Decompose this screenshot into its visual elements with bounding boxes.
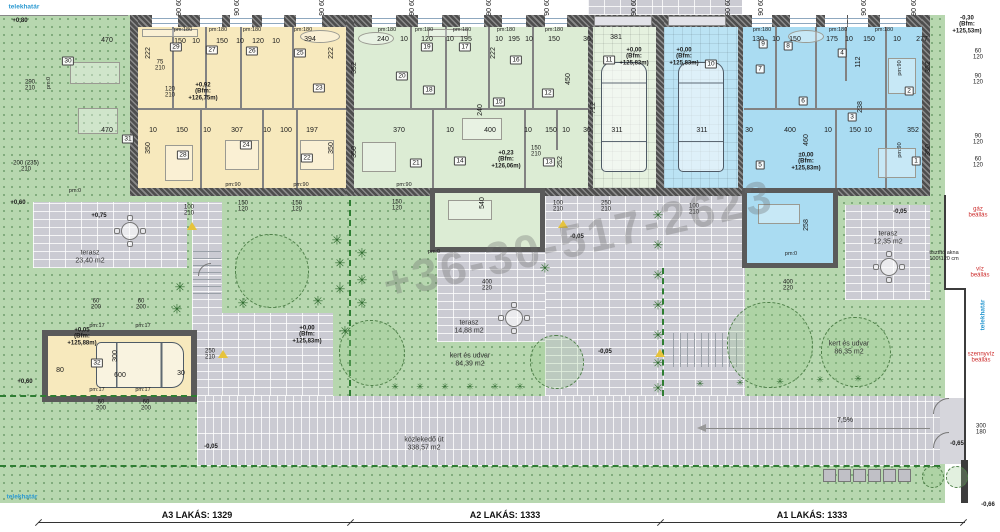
- boundary-label: telekhatár: [7, 493, 38, 500]
- parking-space: [883, 469, 896, 482]
- dimension-label: 350: [145, 142, 153, 154]
- window-marker: [825, 15, 847, 27]
- plant-icon: ✳: [357, 274, 368, 287]
- dimension-label: 10: [864, 127, 872, 135]
- dimension-label: 460: [803, 134, 811, 146]
- dimension-label: 90 60: [725, 0, 733, 16]
- room-number-badge: 18: [423, 86, 435, 95]
- parking-space: [823, 469, 836, 482]
- dimension-label: 30: [583, 36, 591, 44]
- dimension-label: pm:17: [89, 388, 104, 394]
- utility-label: víz beállás: [970, 267, 989, 280]
- boundary-label: telekhatár: [979, 300, 986, 331]
- level-label: +0,00 (Bfm: +125,83m): [669, 47, 698, 66]
- window-marker: [418, 15, 442, 27]
- terrace-chair: [899, 264, 905, 270]
- level-label: +0,75: [91, 213, 106, 219]
- dimension-label: 370: [393, 127, 405, 135]
- window-marker: [296, 15, 322, 27]
- parking-space: [853, 469, 866, 482]
- room-number-badge: 21: [410, 159, 422, 168]
- garage-apron-a2: [588, 0, 662, 15]
- dimension-label: 352: [925, 61, 933, 73]
- room-number-badge: 27: [206, 46, 218, 55]
- plant-icon: ✳: [172, 303, 183, 316]
- dimension-label: pm:180: [174, 28, 192, 34]
- level-label: +0,00 (Bfm: +125,83m): [292, 325, 321, 344]
- terrace-chair: [498, 315, 504, 321]
- dimension-label: 250 210: [205, 349, 215, 362]
- north-boundary-line: [0, 15, 128, 16]
- dimension-label: pm:180: [415, 28, 433, 34]
- plant-icon: ✳: [653, 299, 664, 312]
- utility-label: szennyvíz beállás: [968, 352, 995, 365]
- dimension-label: pm:0: [785, 252, 797, 258]
- garage-door-marker: [594, 16, 652, 26]
- dimension-label: 277: [916, 36, 928, 44]
- terrace-chair: [886, 251, 892, 257]
- room-number-badge: 10: [705, 60, 717, 69]
- partition: [410, 27, 412, 108]
- dimension-label: 150 210: [531, 146, 541, 159]
- room-number-badge: 20: [396, 72, 408, 81]
- dimension-label: pm:17: [135, 324, 150, 330]
- dimension-label: pm:90: [396, 183, 411, 189]
- terrace-chair: [127, 215, 133, 221]
- dimension-label: pm:0: [69, 189, 81, 195]
- area-label: terasz 12,35 m2: [873, 230, 902, 245]
- party-wall-a3-a2: [346, 15, 354, 196]
- dimension-label: 150: [863, 36, 875, 44]
- hedge-plant-icon: ✳: [854, 375, 862, 384]
- dimension-label: 90 60: [758, 0, 766, 16]
- hedge-plant-icon: ✳: [816, 376, 824, 385]
- room-number-badge: 24: [240, 141, 252, 150]
- dimension-label: 100 210: [184, 205, 194, 218]
- room-number-badge: 7: [756, 65, 765, 74]
- room-number-badge: 2: [905, 87, 914, 96]
- terrace-a3: [33, 202, 187, 268]
- room-number-badge: 16: [510, 56, 522, 65]
- parking-space: [838, 469, 851, 482]
- dimension-label: 90 120: [973, 134, 983, 147]
- window-marker: [230, 15, 252, 27]
- dimension-label: 10: [524, 127, 532, 135]
- level-label: -0,05: [204, 444, 218, 450]
- dimension-label: pm:180: [209, 28, 227, 34]
- room-number-badge: 11: [603, 56, 615, 65]
- dimension-label: 240: [477, 104, 485, 116]
- dimension-label: 10: [272, 38, 280, 46]
- bottom-dimension-strip: A3 LAKÁS: 1329 A2 LAKÁS: 1333 A1 LAKÁS: …: [0, 503, 1000, 532]
- dimension-label: 90 60: [234, 0, 242, 16]
- dimension-label: 60 120: [973, 49, 983, 62]
- terrace-chair: [511, 328, 517, 334]
- dimension-label: 150 120: [238, 201, 248, 214]
- terrace-chair: [511, 302, 517, 308]
- car-outline: [96, 342, 184, 388]
- room-number-badge: 4: [838, 49, 847, 58]
- garage-door-marker: [668, 16, 726, 26]
- dimension-label: 10: [400, 36, 408, 44]
- window-marker: [262, 15, 284, 27]
- dimension-label: 311: [696, 127, 707, 135]
- window-marker: [372, 15, 396, 27]
- site-plan: +36-30-517-2623 A3 LAKÁS: 1329 A2 LAKÁS:…: [0, 0, 1000, 532]
- dimension-label: 150: [176, 127, 188, 135]
- terrace-table: [880, 258, 898, 276]
- dimension-label: 400 220: [783, 280, 793, 293]
- dimension-label: 90 60: [861, 0, 869, 16]
- room-number-badge: 1: [912, 157, 921, 166]
- dimension-label: 10: [236, 38, 244, 46]
- plant-icon: ✳: [653, 357, 664, 370]
- dimension-label: pm:17: [89, 324, 104, 330]
- window-marker: [790, 15, 816, 27]
- dimension-label: 10: [893, 36, 901, 44]
- dimension-label: 90 60: [631, 0, 639, 16]
- dimension-label: 238: [857, 101, 865, 113]
- level-label: +0,92 (Bfm: +126,75m): [188, 82, 217, 101]
- dimension-label: 350: [351, 146, 359, 158]
- room-number-badge: 3: [848, 113, 857, 122]
- plant-icon: ✳: [340, 325, 351, 338]
- level-label: ±0,00 (Bfm: +125,83m): [791, 152, 820, 171]
- terrace-chair: [873, 264, 879, 270]
- plant-icon: ✳: [653, 382, 664, 395]
- level-label: -0,30 (Bfm: +125,53m): [952, 15, 981, 34]
- dimension-label: 60 200: [96, 400, 106, 413]
- dimension-label: 311: [611, 127, 622, 135]
- site-boundary: [0, 465, 940, 467]
- dimension-label: 450: [565, 73, 573, 85]
- dimension-label: 10: [446, 127, 454, 135]
- room-number-badge: 14: [454, 157, 466, 166]
- room-number-badge: 29: [170, 43, 182, 52]
- dimension-label: 352: [351, 62, 359, 74]
- partition: [835, 110, 837, 188]
- dimension-label: 470: [101, 37, 113, 45]
- room-number-badge: 25: [294, 49, 306, 58]
- dimension-label: 100 210: [553, 201, 563, 214]
- car-outline: [601, 62, 647, 172]
- dimension-label: pm:90: [898, 142, 904, 157]
- dimension-label: 300 180: [976, 424, 986, 437]
- plant-icon: ✳: [653, 269, 664, 282]
- dimension-label: 400: [484, 127, 496, 135]
- east-boundary: [944, 288, 966, 290]
- area-label: közlekedő út 338,57 m2: [404, 436, 443, 451]
- hedge-plant-icon: ✳: [441, 383, 449, 392]
- area-label: kert és udvar 86,35 m2: [829, 340, 869, 355]
- terrace-table: [121, 222, 139, 240]
- room-number-badge: 12: [542, 89, 554, 98]
- dimension-label: 150: [216, 38, 228, 46]
- dimension-label: 350: [328, 142, 336, 154]
- room-number-badge: 26: [246, 47, 258, 56]
- dimension-label: 240: [377, 36, 389, 44]
- entrance-marker: [187, 222, 197, 230]
- dimension-label: 10: [525, 36, 533, 44]
- dimension-label: 10: [149, 127, 157, 135]
- dimension-label: pm:180: [378, 28, 396, 34]
- dimension-label: 7,5%: [837, 417, 853, 425]
- dimension-label: 350: [925, 144, 933, 156]
- dimension-label: 60 120: [973, 157, 983, 170]
- dimension-label: 60 200: [136, 299, 146, 312]
- dimension-label: 381: [610, 34, 622, 42]
- garage-wall-a1: [738, 27, 743, 188]
- dimension-label: 30: [745, 127, 753, 135]
- dimension-label: pm:17: [135, 388, 150, 394]
- partition: [432, 110, 434, 188]
- hedge-plant-icon: ✳: [696, 380, 704, 389]
- dimension-label: 712: [590, 102, 598, 114]
- terrace-table: [505, 309, 523, 327]
- window-marker: [848, 15, 868, 27]
- plant-icon: ✳: [357, 297, 368, 310]
- lot-boundary: [0, 395, 197, 397]
- dimension-label: pm:180: [875, 28, 893, 34]
- furniture-table: [70, 62, 120, 84]
- hedge-plant-icon: ✳: [416, 383, 424, 392]
- room-number-badge: 13: [543, 158, 555, 167]
- dimension-label: 222: [328, 47, 336, 59]
- plant-icon: ✳: [335, 283, 346, 296]
- level-label: +0,00 (Bfm: +125,83m): [619, 47, 648, 66]
- level-label: +0,60: [17, 379, 32, 385]
- left-wall: [130, 15, 138, 196]
- room-number-badge: 32: [91, 359, 103, 368]
- dimension-label: 222: [490, 47, 498, 59]
- hedge-plant-icon: ✳: [516, 383, 524, 392]
- dimension-label: pm:180: [829, 28, 847, 34]
- dimension-label: pm:90: [225, 183, 240, 189]
- dimension-label: 90 60: [176, 0, 184, 16]
- dimension-label: 150: [545, 127, 557, 135]
- parking-space: [898, 469, 911, 482]
- dimension-label: 90 120: [973, 74, 983, 87]
- dimension-label: 30: [583, 127, 591, 135]
- room-number-badge: 15: [493, 98, 505, 107]
- dimension-label: 200 (235) 210: [13, 161, 39, 174]
- utility-label: gáz beállás: [968, 207, 987, 220]
- dimension-label: 10: [495, 36, 503, 44]
- dimension-label: 600: [114, 372, 126, 380]
- dimension-label: pm:90: [898, 60, 904, 75]
- tree-outline: [946, 466, 968, 488]
- east-boundary: [964, 288, 966, 462]
- plant-icon: ✳: [653, 329, 664, 342]
- dimension-label: 307: [231, 127, 243, 135]
- room-number-badge: 23: [313, 84, 325, 93]
- dimension-label: 252: [557, 156, 565, 168]
- plant-icon: ✳: [313, 295, 324, 308]
- window-marker: [152, 15, 178, 27]
- partition: [296, 110, 298, 188]
- dimension-label: 540: [479, 197, 487, 209]
- level-label: -0,05: [598, 349, 612, 355]
- partition: [354, 108, 588, 110]
- area-label: terasz 23,40 m2: [75, 249, 104, 264]
- dimension-label: 258: [803, 219, 811, 231]
- plant-icon: ✳: [175, 281, 186, 294]
- room-number-badge: 8: [784, 42, 793, 51]
- car-outline: [678, 62, 724, 172]
- entrance-marker: [218, 350, 228, 358]
- boundary-label: telekhatár: [9, 3, 40, 10]
- dimension-label: 75 210: [155, 60, 165, 73]
- terrace-chair: [127, 241, 133, 247]
- room-number-badge: 9: [759, 40, 768, 49]
- room-number-badge: 22: [301, 154, 313, 163]
- dimension-label: 394: [304, 36, 316, 44]
- dimension-label: 10: [446, 36, 454, 44]
- dimension-label: 10: [845, 36, 853, 44]
- dimension-label: 352: [907, 127, 919, 135]
- dimension-label: pm:180: [243, 28, 261, 34]
- window-marker: [880, 15, 906, 27]
- plant-icon: ✳: [332, 234, 343, 247]
- area-label: terasz 14,88 m2: [454, 319, 483, 334]
- lot-width-a3: A3 LAKÁS: 1329: [162, 510, 233, 520]
- dimension-label: 120: [252, 38, 264, 46]
- driveway: [197, 396, 940, 466]
- parking-space: [868, 469, 881, 482]
- hedge-plant-icon: ✳: [491, 383, 499, 392]
- dimension-label: 222: [145, 47, 153, 59]
- dimension-label: tisztító akna 100*120 cm: [929, 251, 958, 263]
- room-number-badge: 17: [459, 43, 471, 52]
- dimension-label: 175: [826, 36, 838, 44]
- level-label: -0,66: [981, 502, 995, 508]
- level-label: +0,60: [10, 200, 25, 206]
- dimension-label: 90 60: [486, 0, 494, 16]
- dim-tick: [960, 519, 967, 526]
- dimension-label: 195: [508, 36, 520, 44]
- dimension-label: 10: [203, 127, 211, 135]
- east-boundary: [944, 195, 946, 290]
- terrace-chair: [886, 277, 892, 283]
- dimension-label: pm:0: [47, 77, 53, 89]
- plant-icon: ✳: [357, 247, 368, 260]
- dimension-label: 290 210: [25, 80, 35, 93]
- dimension-label: pm:180: [753, 28, 771, 34]
- tree-outline: [530, 335, 584, 389]
- dimension-label: 400: [784, 127, 796, 135]
- dimension-label: pm:180: [545, 28, 563, 34]
- terrace-chair: [140, 228, 146, 234]
- area-label: kert és udvar 84,39 m2: [450, 352, 490, 367]
- window-marker: [200, 15, 222, 27]
- furniture-bed: [362, 142, 396, 172]
- dimension-label: 80: [56, 367, 64, 375]
- slope-arrow-head: [697, 424, 706, 432]
- dimension-label: 10: [824, 127, 832, 135]
- dimension-label: pm:180: [497, 28, 515, 34]
- dimension-label: 150: [849, 127, 861, 135]
- dimension-label: pm:90: [293, 183, 308, 189]
- partition: [262, 110, 264, 188]
- partition: [200, 110, 202, 188]
- hedge-plant-icon: ✳: [736, 379, 744, 388]
- partition: [488, 27, 490, 108]
- dimension-label: 100: [280, 127, 292, 135]
- tree-outline: [922, 466, 944, 488]
- dimension-label: 90 60: [544, 0, 552, 16]
- lot-width-a1: A1 LAKÁS: 1333: [777, 510, 848, 520]
- dimension-label: 60 200: [91, 299, 101, 312]
- dimension-label: 150 120: [292, 201, 302, 214]
- dimension-label: pm:180: [453, 28, 471, 34]
- party-wall-a2-a1: [656, 15, 664, 196]
- partition: [885, 27, 887, 108]
- dimension-label: 10: [562, 127, 570, 135]
- dimension-label: 300: [112, 350, 120, 362]
- plant-icon: ✳: [335, 257, 346, 270]
- plant-icon: ✳: [238, 297, 249, 310]
- window-marker: [752, 15, 772, 27]
- hedge-plant-icon: ✳: [776, 378, 784, 387]
- lot-width-a2: A2 LAKÁS: 1333: [470, 510, 541, 520]
- slope-arrow-line: [706, 428, 930, 429]
- tree-outline: [727, 302, 813, 388]
- dimension-label: 90 60: [319, 0, 327, 16]
- dimension-label: 10: [192, 38, 200, 46]
- dimension-label: 90 60: [409, 0, 417, 16]
- dimension-label: 10: [772, 36, 780, 44]
- room-number-badge: 30: [62, 57, 74, 66]
- dimension-label: pm:180: [294, 28, 312, 34]
- entrance-marker: [655, 349, 665, 357]
- partition: [524, 110, 526, 188]
- level-label: +0,23 (Bfm: +126,06m): [491, 150, 520, 169]
- room-number-badge: 28: [177, 151, 189, 160]
- partition: [744, 108, 922, 110]
- dimension-label: 470: [101, 127, 113, 135]
- dimension-label: 120 210: [165, 87, 175, 100]
- terrace-chair: [524, 315, 530, 321]
- hedge-plant-icon: ✳: [466, 383, 474, 392]
- hedge-plant-icon: ✳: [391, 383, 399, 392]
- terrace-chair: [114, 228, 120, 234]
- room-number-badge: 6: [799, 97, 808, 106]
- window-marker: [545, 15, 567, 27]
- dimension-label: 60 200: [141, 400, 151, 413]
- dimension-label: 112: [855, 56, 863, 67]
- room-number-badge: 31: [122, 135, 134, 144]
- window-marker: [460, 15, 484, 27]
- dimension-label: 150: [548, 36, 560, 44]
- dimension-label: 90 60: [911, 0, 919, 16]
- window-marker: [502, 15, 526, 27]
- level-label: +0,05 (Bfm: +125,88m): [67, 327, 96, 346]
- level-label: -0,05: [893, 209, 907, 215]
- room-number-badge: 19: [421, 43, 433, 52]
- level-label: -0,65: [950, 441, 964, 447]
- dimension-label: 10: [263, 127, 271, 135]
- dimension-label: 30: [177, 370, 185, 378]
- dimension-label: 197: [306, 127, 318, 135]
- dimension-label: 150 120: [392, 200, 402, 213]
- lot-width-dimension-line: [38, 522, 965, 523]
- level-label: +0,80: [12, 18, 27, 24]
- partition: [292, 27, 294, 110]
- partition: [138, 108, 346, 110]
